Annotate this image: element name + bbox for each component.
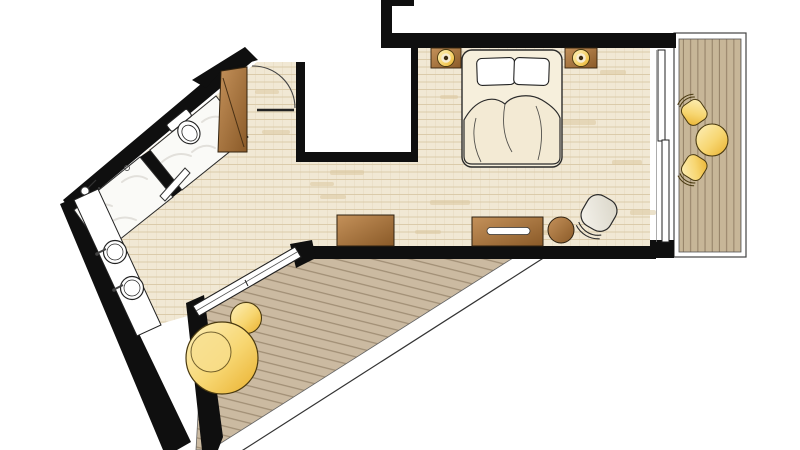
floor-plan-canvas	[0, 0, 800, 450]
desk-drawer-handle	[487, 228, 530, 235]
daybed-cushion	[191, 332, 231, 372]
balcony-door-panel-lower	[662, 140, 669, 242]
wall-courtyard-east	[411, 47, 418, 157]
balcony-door-panel-upper	[658, 50, 665, 141]
wall-courtyard-south	[296, 152, 418, 162]
wall-bedroom-south	[306, 246, 656, 259]
round-stool	[548, 217, 574, 243]
wall-courtyard-west	[296, 62, 305, 157]
balcony	[674, 33, 746, 257]
pillow-right	[514, 57, 550, 85]
table-lamp-left	[438, 50, 455, 67]
wall-bedroom-north	[381, 33, 676, 48]
duvet	[464, 96, 560, 164]
table-lamp-right	[573, 50, 590, 67]
balcony-table	[696, 124, 728, 156]
dresser	[337, 215, 394, 246]
pillow-left	[477, 57, 516, 85]
